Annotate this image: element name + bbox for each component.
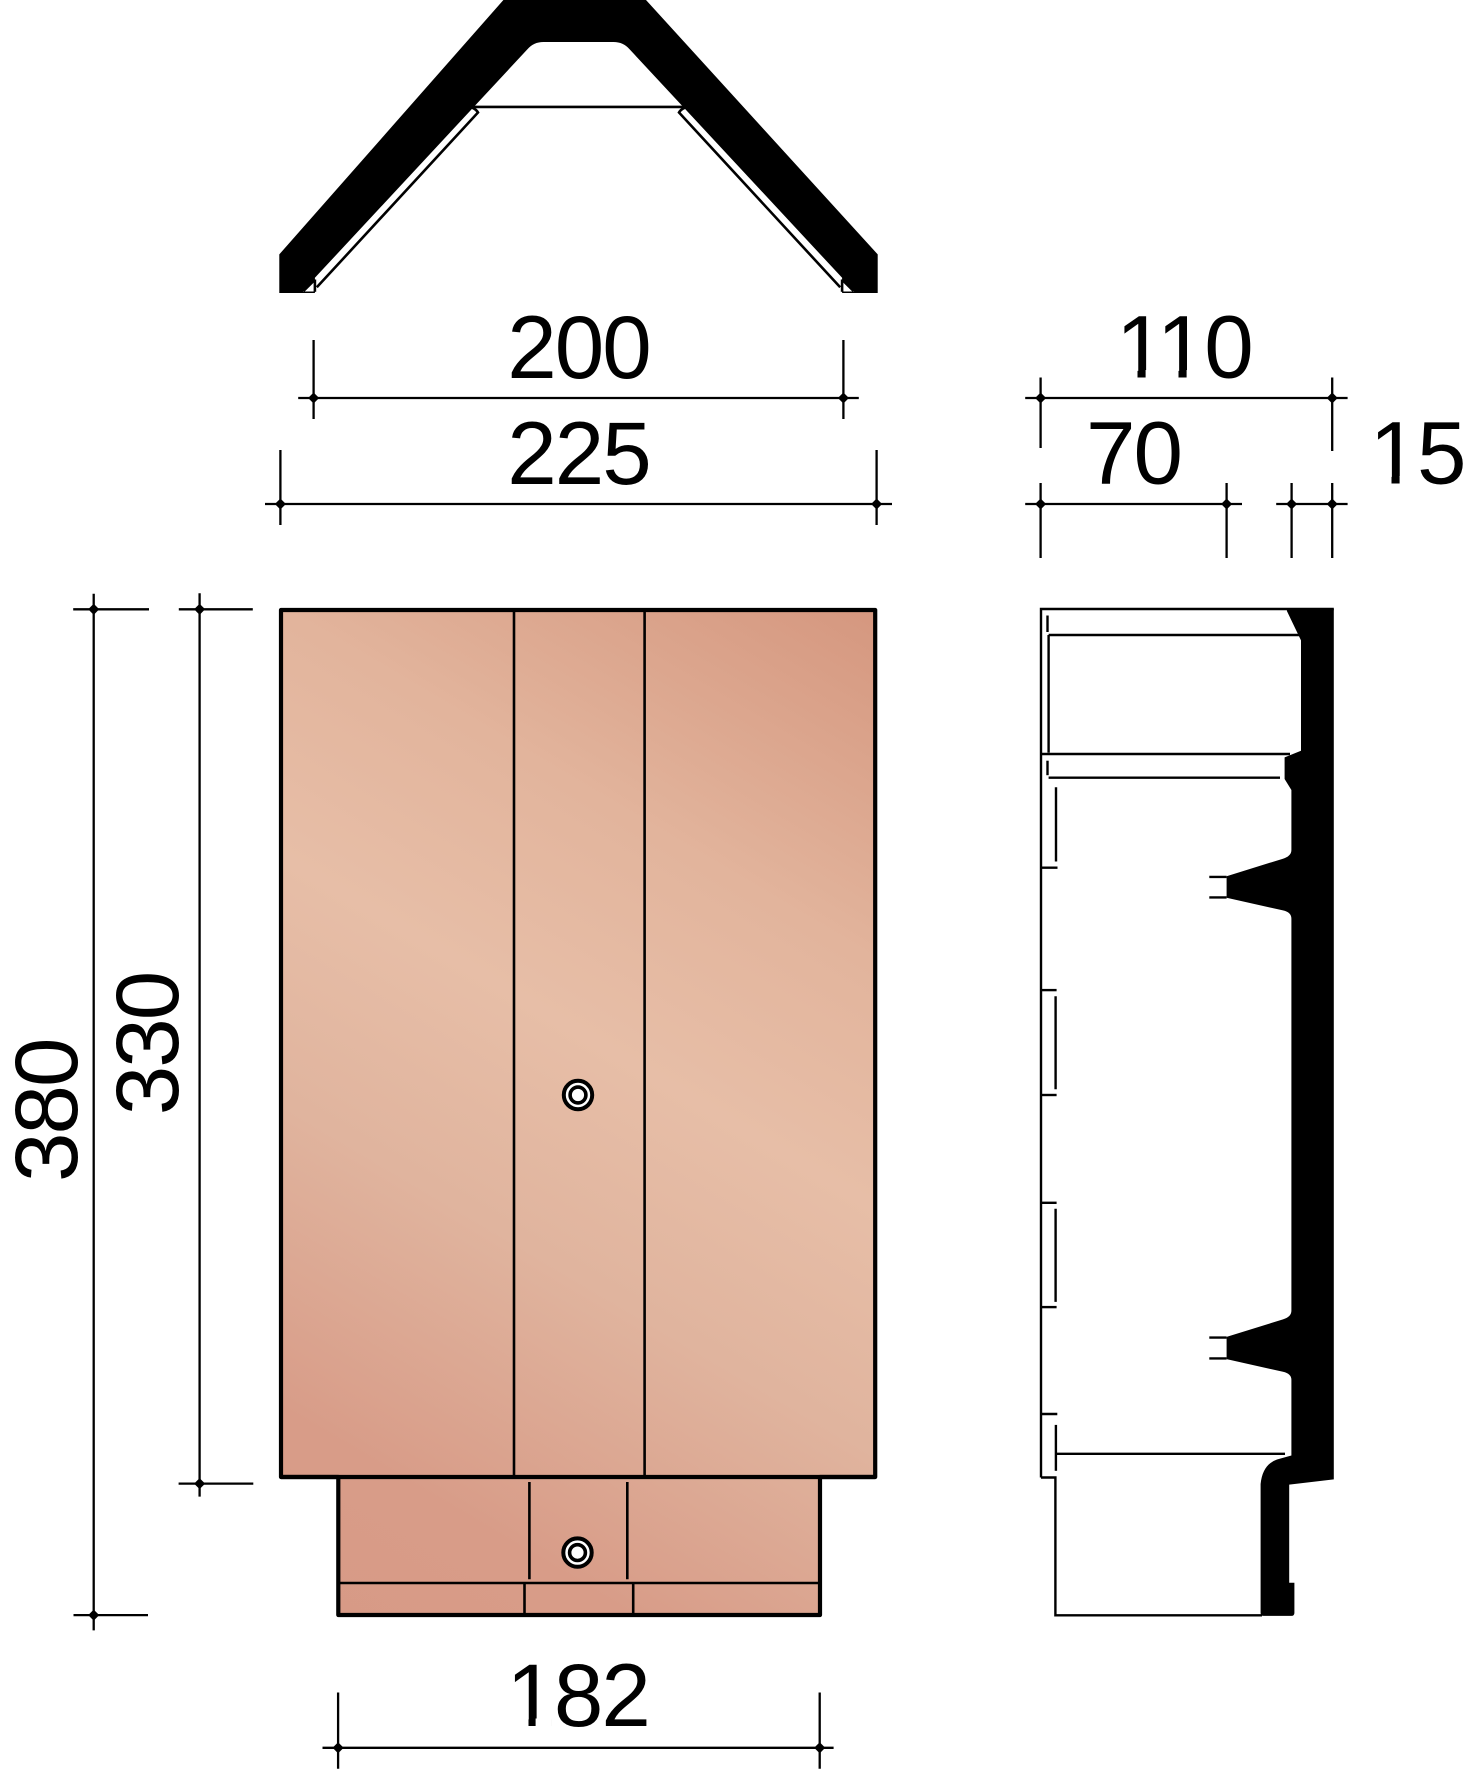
- svg-text:225: 225: [507, 403, 650, 503]
- svg-text:110: 110: [1116, 297, 1252, 397]
- svg-text:380: 380: [0, 1040, 96, 1183]
- svg-text:70: 70: [1086, 403, 1181, 503]
- svg-text:182: 182: [506, 1645, 649, 1745]
- svg-text:200: 200: [507, 297, 650, 397]
- svg-text:330: 330: [97, 973, 197, 1116]
- svg-text:15: 15: [1370, 403, 1464, 503]
